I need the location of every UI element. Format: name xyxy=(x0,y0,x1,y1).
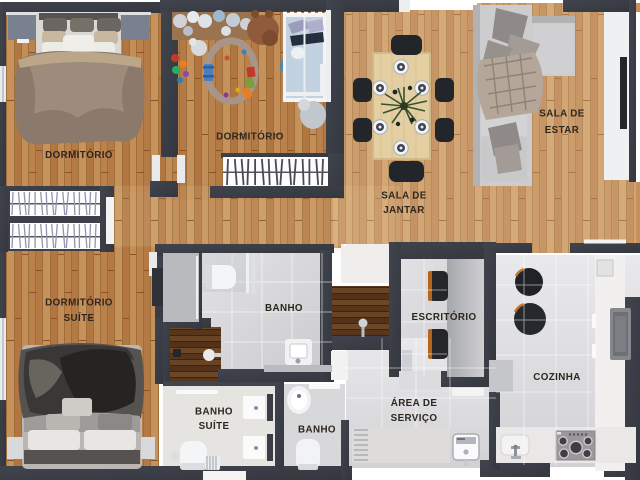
svg-text:DORMITÓRIO: DORMITÓRIO xyxy=(216,131,284,143)
svg-text:ESTAR: ESTAR xyxy=(545,125,579,136)
svg-text:DORMITÓRIO: DORMITÓRIO xyxy=(45,297,113,309)
svg-text:SALA DE: SALA DE xyxy=(539,109,585,120)
svg-text:SALA DE: SALA DE xyxy=(381,191,427,202)
svg-text:COZINHA: COZINHA xyxy=(533,372,580,383)
svg-text:ESCRITÓRIO: ESCRITÓRIO xyxy=(412,311,477,323)
svg-text:SUÍTE: SUÍTE xyxy=(64,312,95,324)
svg-text:JANTAR: JANTAR xyxy=(383,205,424,216)
svg-text:ÁREA DE: ÁREA DE xyxy=(391,397,438,409)
svg-text:BANHO: BANHO xyxy=(195,407,233,418)
svg-text:DORMITÓRIO: DORMITÓRIO xyxy=(45,149,113,161)
svg-text:BANHO: BANHO xyxy=(265,303,303,314)
svg-text:SUÍTE: SUÍTE xyxy=(199,420,230,432)
svg-text:BANHO: BANHO xyxy=(298,425,336,436)
svg-text:SERVIÇO: SERVIÇO xyxy=(391,413,438,424)
